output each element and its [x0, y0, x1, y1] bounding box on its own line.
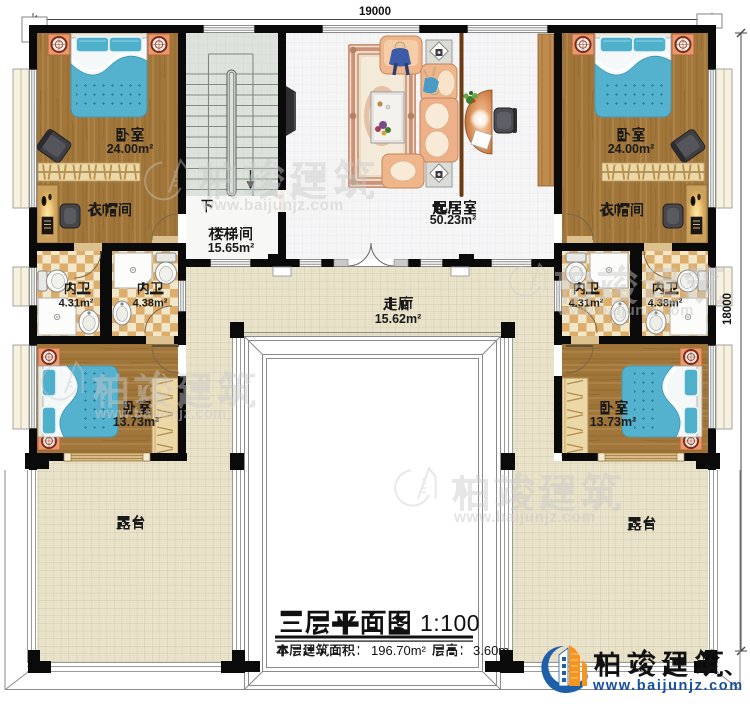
- svg-text:15.62m²: 15.62m²: [375, 312, 422, 326]
- svg-text:4.38m²: 4.38m²: [133, 298, 168, 310]
- svg-text:50.23m²: 50.23m²: [430, 213, 477, 227]
- svg-text:24.00m²: 24.00m²: [107, 142, 154, 156]
- svg-text:13.73m²: 13.73m²: [590, 415, 637, 429]
- svg-text:www.baijunjz.com: www.baijunjz.com: [453, 509, 596, 526]
- svg-text:24.00m²: 24.00m²: [608, 142, 655, 156]
- svg-text:19000: 19000: [359, 6, 391, 18]
- svg-text:www.baijunjz.com: www.baijunjz.com: [557, 302, 694, 319]
- svg-text:18000: 18000: [722, 293, 734, 325]
- svg-text:www.baijunjz.com: www.baijunjz.com: [201, 197, 344, 214]
- svg-text:3.60m: 3.60m: [473, 643, 509, 658]
- svg-text:www.baijunjz.com: www.baijunjz.com: [94, 406, 227, 422]
- svg-text:4.31m²: 4.31m²: [59, 298, 94, 310]
- svg-text:15.65m²: 15.65m²: [208, 241, 255, 255]
- svg-text:196.70m²: 196.70m²: [371, 643, 427, 658]
- svg-text:www.baijunjz.com: www.baijunjz.com: [592, 678, 744, 694]
- svg-text:1:100: 1:100: [420, 610, 480, 636]
